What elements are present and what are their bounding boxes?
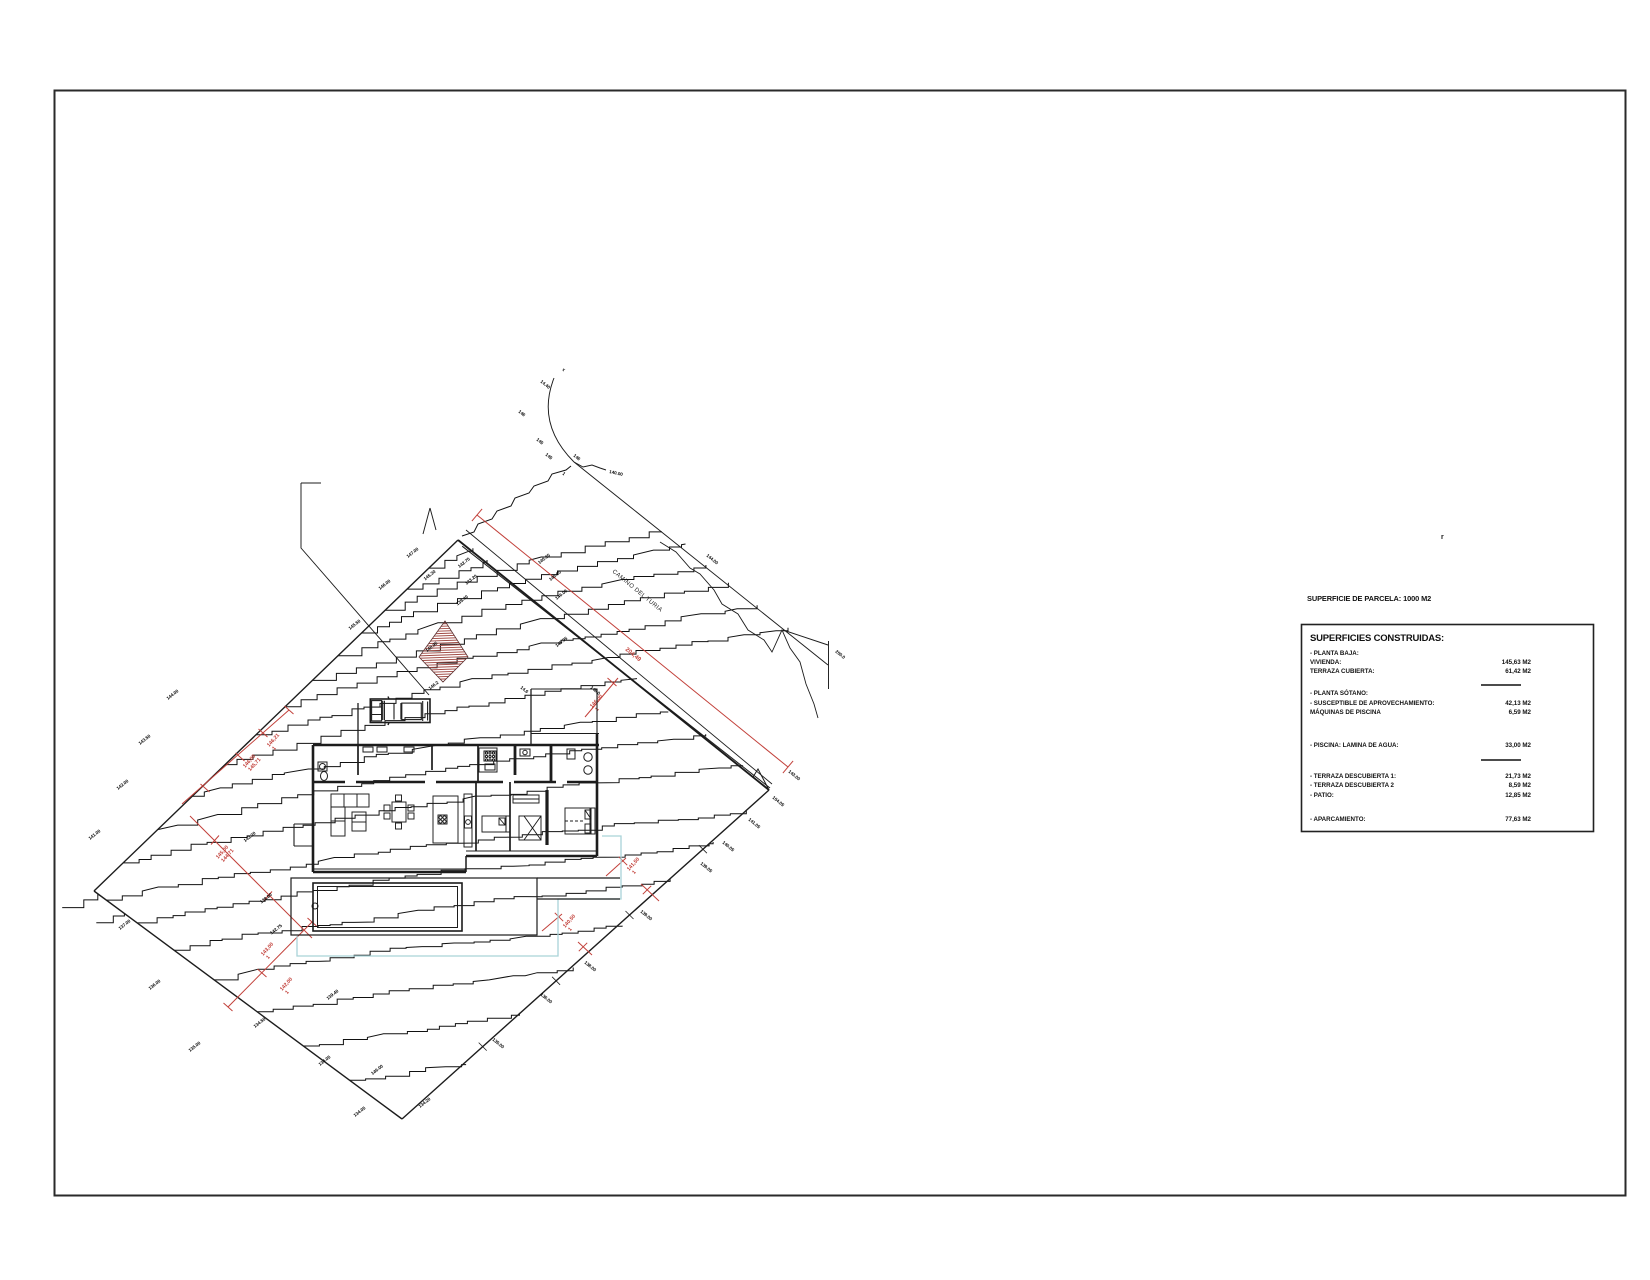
svg-text:145,63 M2: 145,63 M2 <box>1502 659 1532 666</box>
svg-text:r: r <box>1441 534 1444 541</box>
svg-text:- APARCAMIENTO:: - APARCAMIENTO: <box>1310 816 1366 823</box>
svg-text:21,73 M2: 21,73 M2 <box>1505 773 1531 780</box>
svg-text:6,59 M2: 6,59 M2 <box>1509 709 1532 716</box>
svg-text:- PATIO:: - PATIO: <box>1310 792 1334 799</box>
svg-text:- PLANTA BAJA:: - PLANTA BAJA: <box>1310 650 1359 657</box>
svg-text:- TERRAZA DESCUBIERTA 2: - TERRAZA DESCUBIERTA 2 <box>1310 782 1395 789</box>
svg-text:33,00 M2: 33,00 M2 <box>1505 742 1531 749</box>
svg-text:- SUSCEPTIBLE DE APROVECHAMIEN: - SUSCEPTIBLE DE APROVECHAMIENTO: <box>1310 700 1434 707</box>
svg-text:TERRAZA CUBIERTA:: TERRAZA CUBIERTA: <box>1310 668 1375 675</box>
svg-text:SUPERFICIES CONSTRUIDAS:: SUPERFICIES CONSTRUIDAS: <box>1310 633 1444 644</box>
svg-text:12,85 M2: 12,85 M2 <box>1505 792 1531 799</box>
svg-text:77,63 M2: 77,63 M2 <box>1505 816 1531 823</box>
svg-text:- PLANTA SÓTANO:: - PLANTA SÓTANO: <box>1310 689 1368 697</box>
svg-text:MÁQUINAS DE PISCINA: MÁQUINAS DE PISCINA <box>1310 709 1381 716</box>
svg-text:SUPERFICIE DE PARCELA: 1000 M2: SUPERFICIE DE PARCELA: 1000 M2 <box>1307 594 1431 603</box>
svg-text:- TERRAZA DESCUBIERTA 1:: - TERRAZA DESCUBIERTA 1: <box>1310 773 1396 780</box>
svg-text:42,13 M2: 42,13 M2 <box>1505 700 1531 707</box>
svg-text:8,59 M2: 8,59 M2 <box>1509 782 1532 789</box>
svg-text:- PISCINA: LAMINA DE AGUA:: - PISCINA: LAMINA DE AGUA: <box>1310 742 1399 749</box>
svg-text:VIVIENDA:: VIVIENDA: <box>1310 659 1341 666</box>
svg-text:61,42 M2: 61,42 M2 <box>1505 668 1531 675</box>
